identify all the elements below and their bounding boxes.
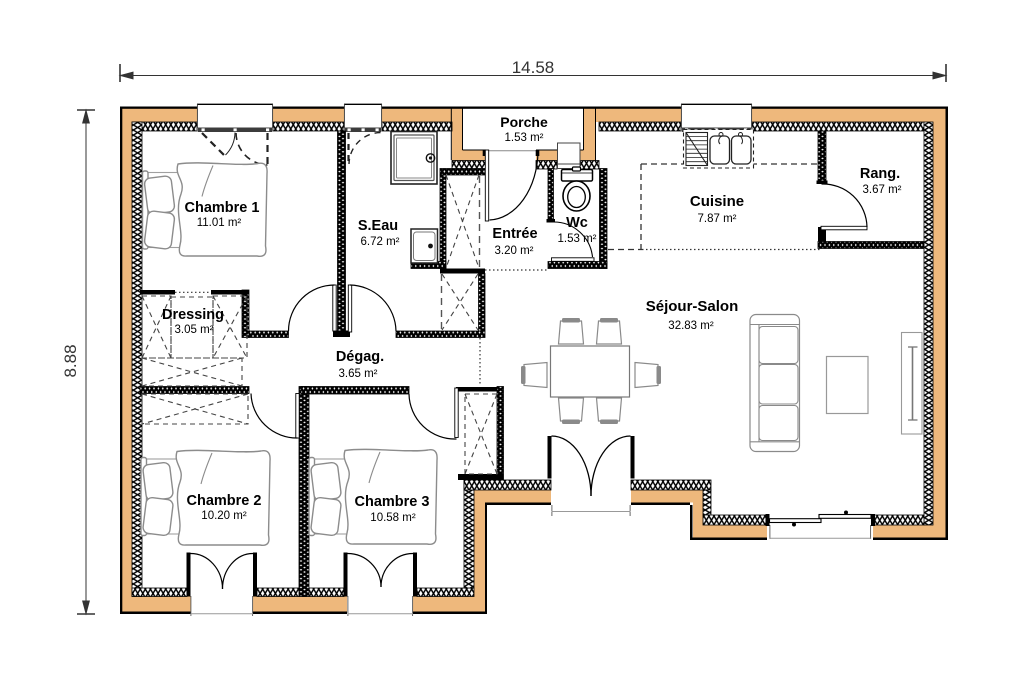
svg-text:6.72 m²: 6.72 m² (361, 236, 400, 248)
svg-text:8.88: 8.88 (61, 344, 80, 377)
svg-text:Porche: Porche (500, 114, 548, 130)
svg-text:Wc: Wc (566, 215, 588, 231)
svg-text:3.05 m²: 3.05 m² (175, 324, 214, 336)
svg-text:Chambre 1: Chambre 1 (185, 200, 260, 216)
svg-text:Séjour-Salon: Séjour-Salon (646, 298, 739, 315)
svg-text:Chambre 2: Chambre 2 (187, 493, 262, 509)
svg-text:Dressing: Dressing (162, 307, 224, 323)
svg-text:Entrée: Entrée (492, 226, 537, 242)
svg-text:Rang.: Rang. (860, 166, 900, 182)
svg-text:11.01 m²: 11.01 m² (197, 217, 242, 229)
svg-text:1.53 m²: 1.53 m² (505, 132, 544, 144)
svg-text:10.20 m²: 10.20 m² (201, 510, 247, 522)
svg-text:3.20 m²: 3.20 m² (495, 245, 534, 257)
svg-text:10.58 m²: 10.58 m² (370, 512, 416, 524)
svg-text:Chambre 3: Chambre 3 (355, 494, 430, 510)
svg-text:Cuisine: Cuisine (690, 193, 744, 210)
svg-text:1.53 m²: 1.53 m² (558, 233, 597, 245)
svg-text:Dégag.: Dégag. (336, 349, 384, 365)
svg-text:3.67 m²: 3.67 m² (863, 184, 902, 196)
svg-text:32.83 m²: 32.83 m² (668, 320, 714, 332)
svg-text:14.58: 14.58 (512, 58, 555, 77)
svg-text:7.87 m²: 7.87 m² (698, 213, 737, 225)
svg-text:3.65 m²: 3.65 m² (339, 368, 378, 380)
svg-text:S.Eau: S.Eau (358, 218, 398, 234)
